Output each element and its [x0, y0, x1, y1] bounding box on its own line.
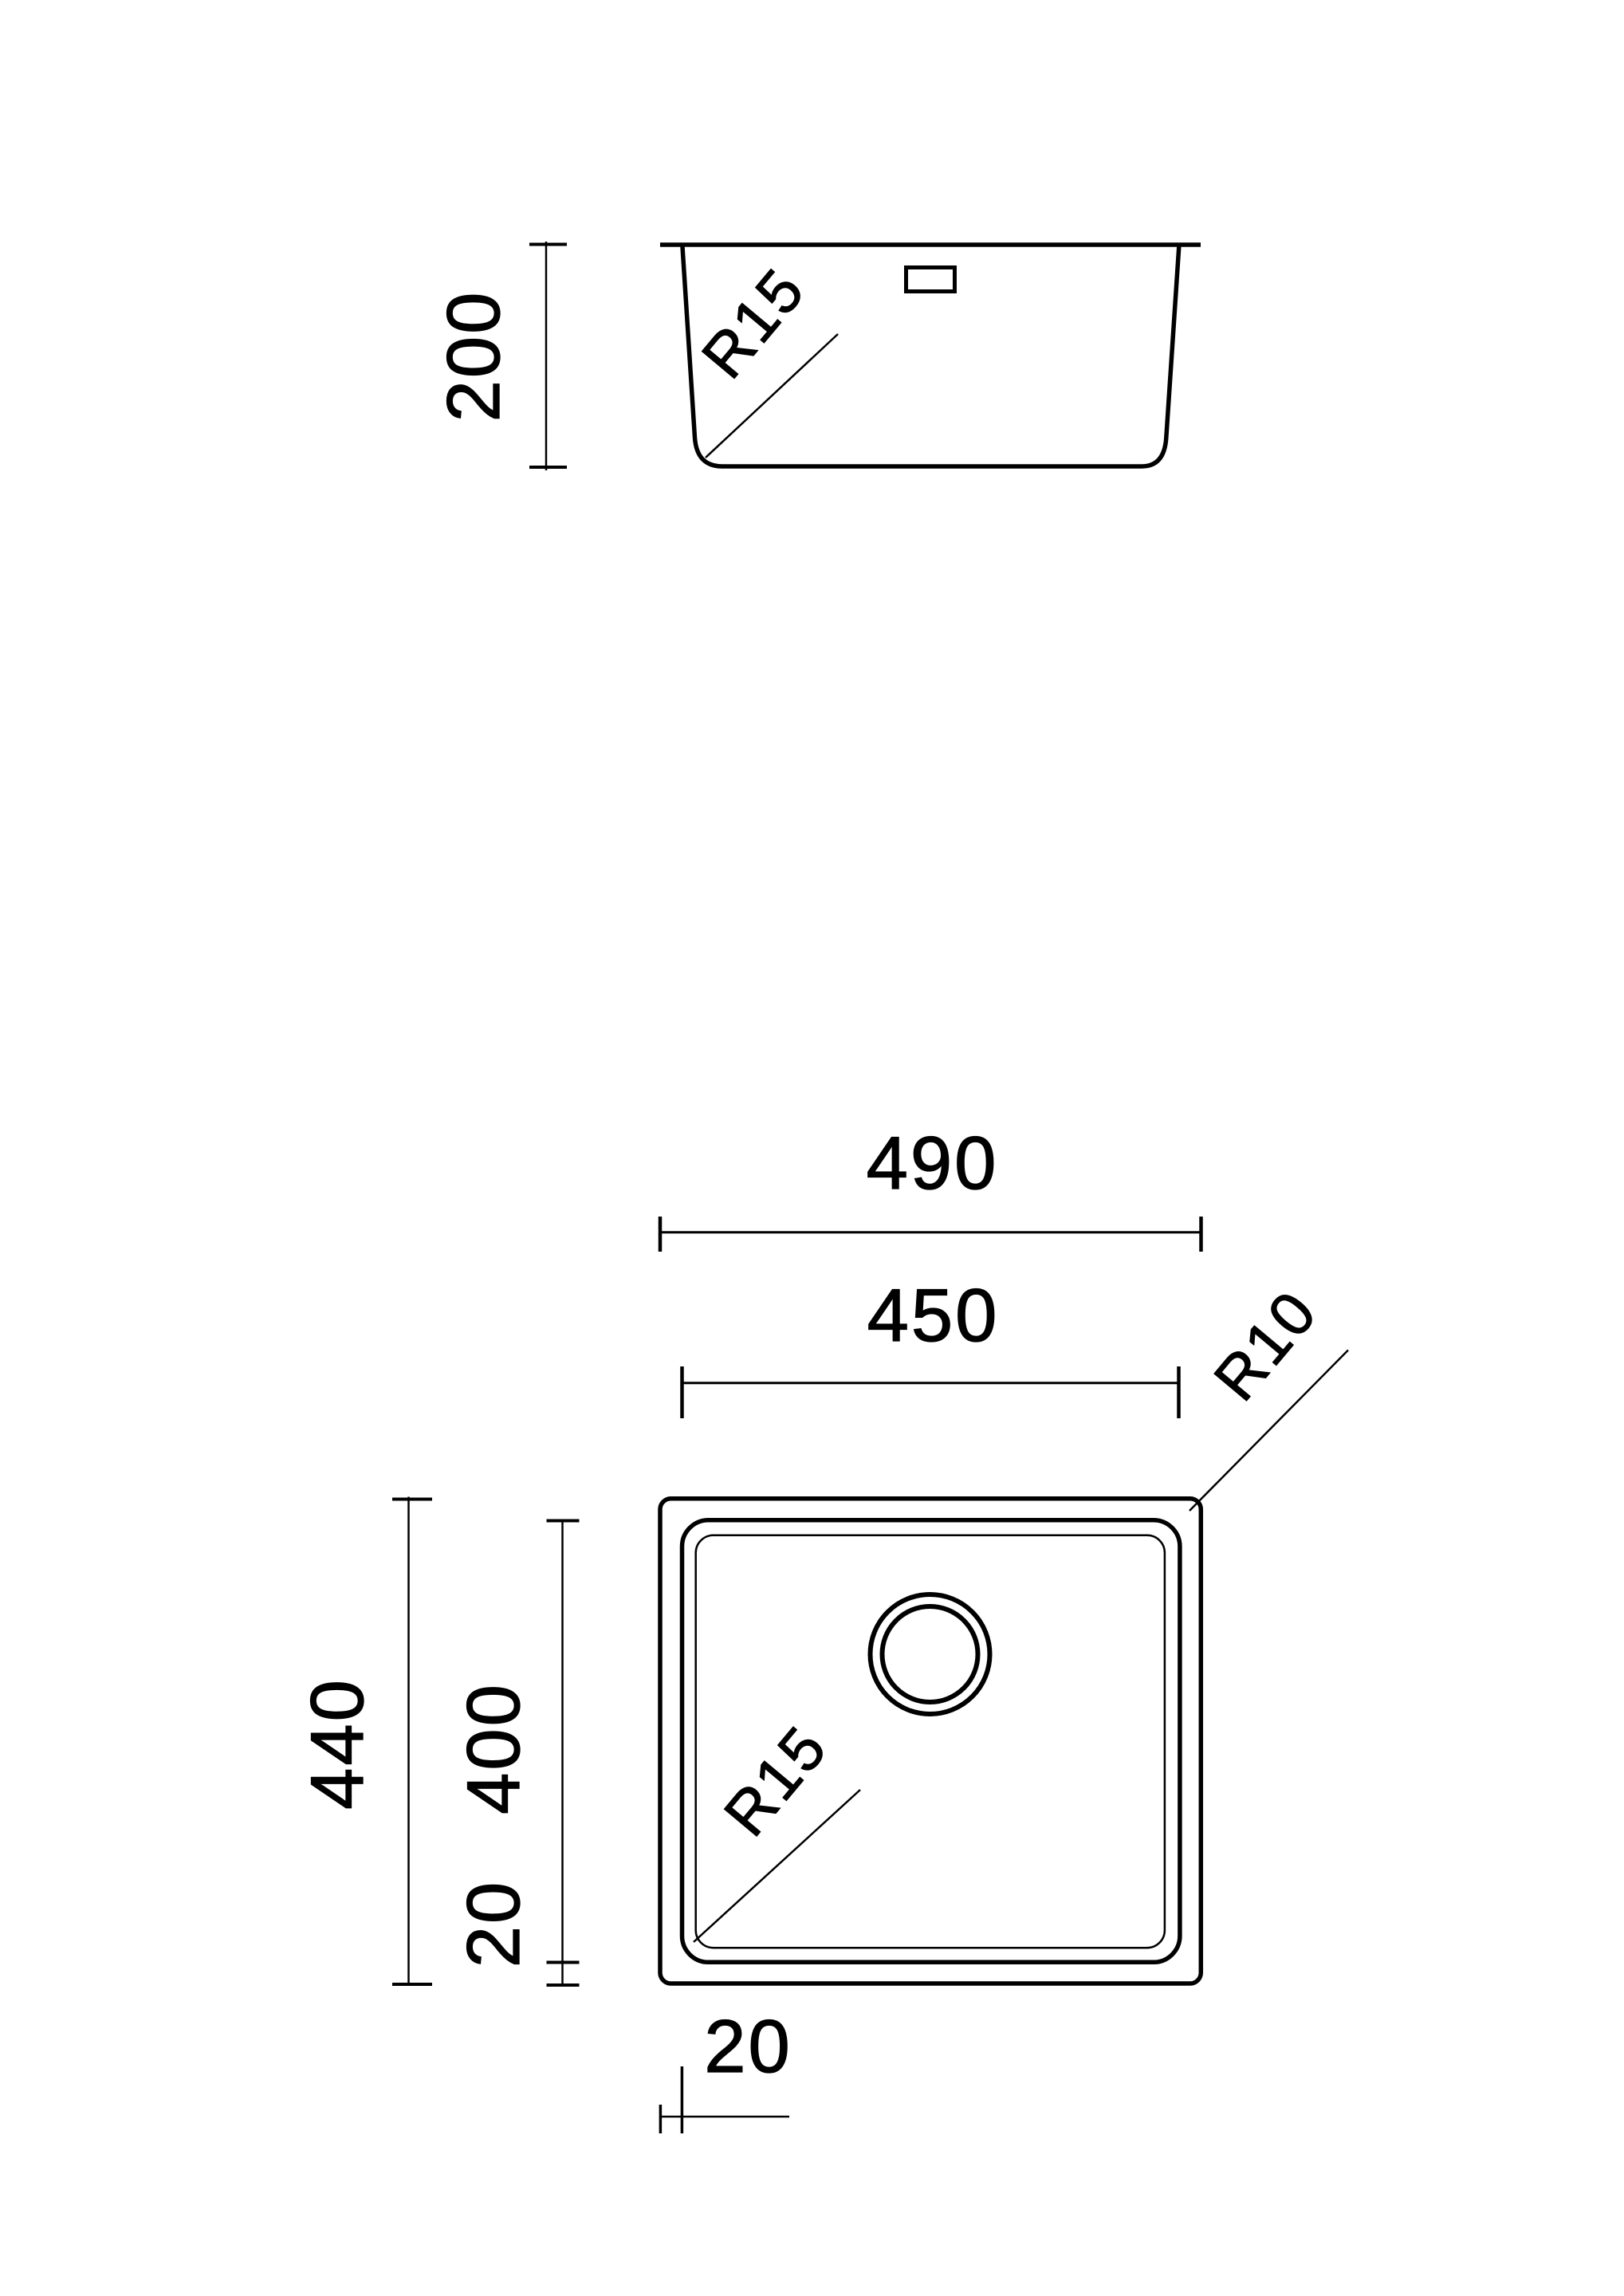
svg-text:440: 440	[295, 1677, 379, 1810]
svg-text:200: 200	[431, 290, 515, 423]
svg-text:20: 20	[451, 1880, 535, 1968]
svg-text:490: 490	[867, 1121, 999, 1205]
svg-text:450: 450	[867, 1273, 1000, 1357]
svg-text:400: 400	[451, 1682, 535, 1814]
svg-text:20: 20	[704, 2004, 792, 2088]
